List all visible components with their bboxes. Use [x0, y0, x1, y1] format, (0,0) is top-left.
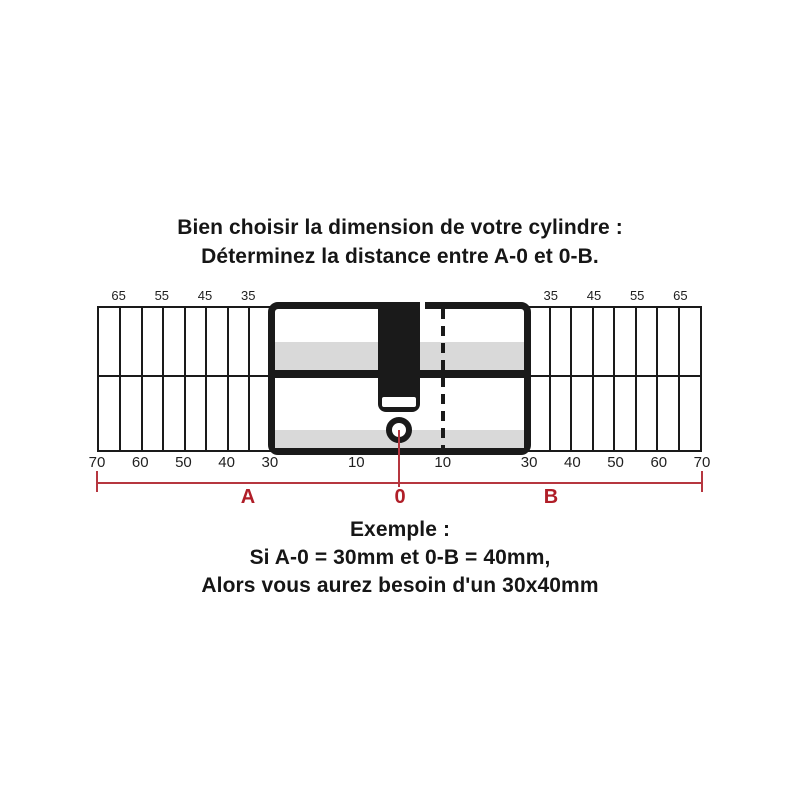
scale-label: 70 — [694, 454, 711, 471]
scale-label: 55 — [630, 288, 644, 303]
title-line-1: Bien choisir la dimension de votre cylin… — [0, 213, 800, 242]
cam-notch — [420, 302, 425, 309]
label-a: A — [241, 486, 255, 509]
cam-slot — [382, 397, 416, 407]
ruler-tick-line — [549, 308, 551, 450]
scale-label: 65 — [673, 288, 687, 303]
scale-label: 60 — [132, 454, 149, 471]
ruler-tick-line — [141, 308, 143, 450]
ruler-tick-line — [184, 308, 186, 450]
scale-label: 55 — [155, 288, 169, 303]
ruler-tick-line — [656, 308, 658, 450]
ruler-tick-line — [678, 308, 680, 450]
scale-label: 30 — [521, 454, 538, 471]
offset-dashed-line — [441, 309, 445, 448]
scale-label: 10 — [434, 454, 451, 471]
ruler-tick-line — [119, 308, 121, 450]
scale-label: 40 — [218, 454, 235, 471]
scale-label: 70 — [89, 454, 106, 471]
example-line-3: Alors vous aurez besoin d'un 30x40mm — [0, 572, 800, 600]
scale-label: 35 — [241, 288, 255, 303]
ruler-tick-line — [248, 308, 250, 450]
ruler-tick-line — [162, 308, 164, 450]
scale-label: 35 — [544, 288, 558, 303]
ruler-tick-line — [635, 308, 637, 450]
example-text: Exemple : Si A-0 = 30mm et 0-B = 40mm, A… — [0, 516, 800, 600]
title-line-2: Déterminez la distance entre A-0 et 0-B. — [0, 242, 800, 271]
scale-label: 40 — [564, 454, 581, 471]
label-zero: 0 — [394, 486, 405, 509]
scale-label: 10 — [348, 454, 365, 471]
scale-label: 50 — [175, 454, 192, 471]
ruler-tick-line — [592, 308, 594, 450]
ruler-tick-line — [570, 308, 572, 450]
ruler-tick-line — [227, 308, 229, 450]
ruler-tick-line — [613, 308, 615, 450]
scale-label: 65 — [111, 288, 125, 303]
cylinder-cam — [378, 302, 420, 412]
dimension-line — [97, 482, 703, 484]
dimension-tick-left — [96, 471, 98, 492]
example-line-1: Exemple : — [0, 516, 800, 544]
scale-label: 30 — [262, 454, 279, 471]
scale-label: 50 — [607, 454, 624, 471]
zero-axis-line — [398, 430, 400, 487]
dimension-tick-right — [701, 471, 703, 492]
example-line-2: Si A-0 = 30mm et 0-B = 40mm, — [0, 544, 800, 572]
label-b: B — [544, 486, 558, 509]
scale-label: 45 — [198, 288, 212, 303]
scale-label: 60 — [650, 454, 667, 471]
ruler-tick-line — [205, 308, 207, 450]
scale-label: 45 — [587, 288, 601, 303]
page-title: Bien choisir la dimension de votre cylin… — [0, 213, 800, 271]
